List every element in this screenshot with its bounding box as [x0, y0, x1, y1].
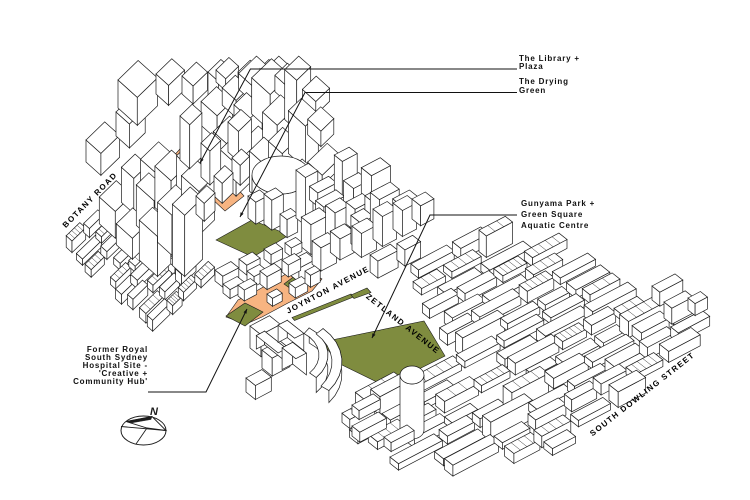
svg-text:N: N [150, 406, 159, 418]
